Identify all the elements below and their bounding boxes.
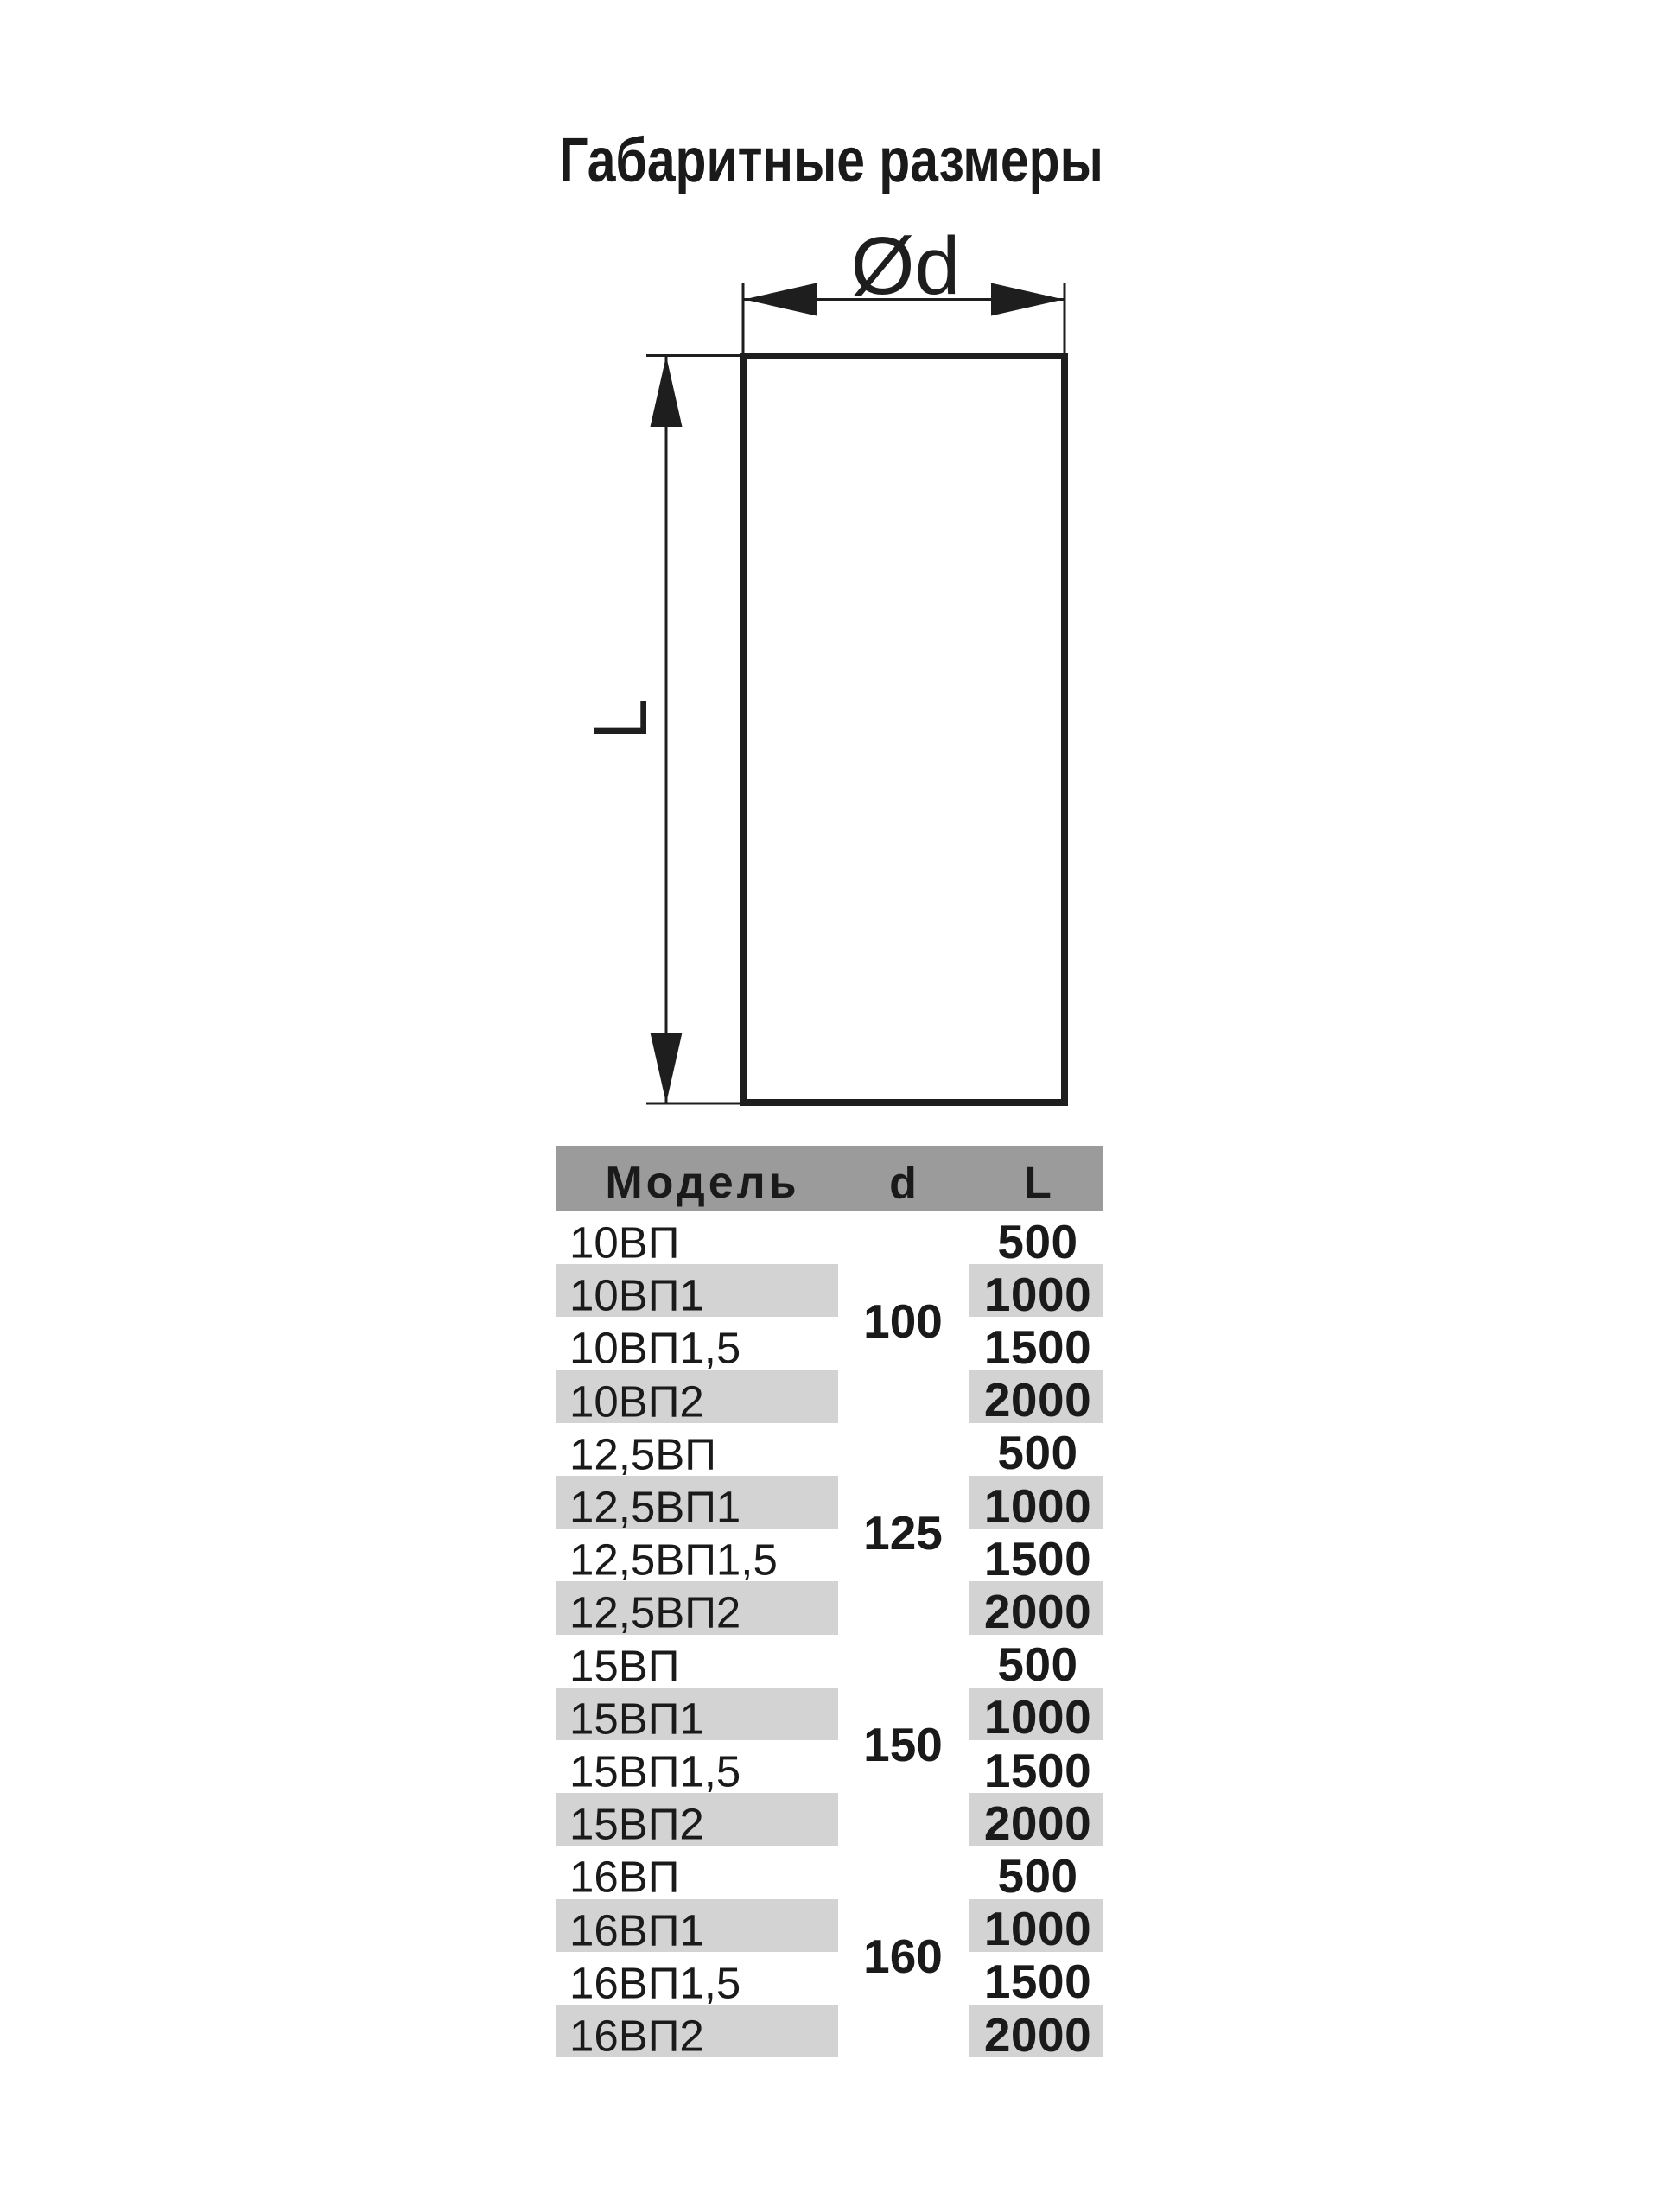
svg-text:L: L: [577, 698, 663, 741]
